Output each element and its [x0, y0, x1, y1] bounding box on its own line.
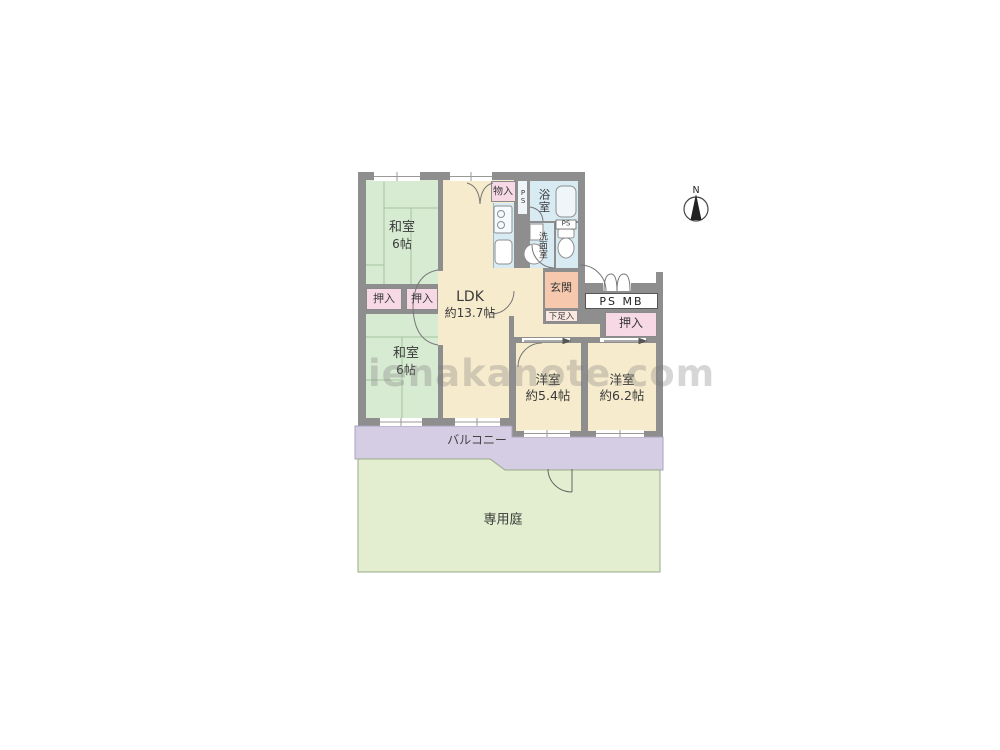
ldk-label: LDK 約13.7帖	[445, 288, 496, 322]
sliding-door-gap	[522, 338, 570, 342]
oshiire-left-2-label: 押入	[411, 292, 433, 306]
sliding-door-gap	[600, 338, 646, 342]
washitsu-top-label: 和室 6帖	[389, 220, 415, 252]
oshiire-left-1-label: 押入	[373, 292, 395, 306]
balcony-label: バルコニー	[447, 433, 507, 449]
entrance-door-gap	[603, 283, 631, 291]
bathroom-label: 浴室	[537, 189, 552, 214]
toilet-room	[556, 223, 578, 268]
entrance-label: 玄関	[550, 281, 572, 295]
washitsu-top-size: 6帖	[389, 237, 415, 253]
ldk-size: 約13.7帖	[445, 306, 496, 322]
oshiire-right-label: 押入	[619, 316, 643, 332]
ps-mb-label: PS MB	[599, 295, 643, 308]
shoe-cabinet-label: 下足入	[546, 311, 577, 321]
ldk-name: LDK	[445, 288, 496, 306]
north-arrow-icon	[684, 194, 708, 221]
watermark: ienakanote.com	[368, 352, 715, 395]
building-wall-east-pillar	[656, 272, 663, 283]
wall-segment	[438, 172, 443, 271]
private-garden-label: 専用庭	[483, 513, 522, 530]
compass-north-label: N	[692, 185, 699, 197]
washroom-label: 洗面室	[535, 232, 547, 259]
kitchen-area	[493, 203, 514, 268]
ps-small-label: PS	[562, 219, 571, 228]
shoe-cabinet: 下足入	[545, 310, 578, 322]
floor-plan-canvas: 下足入 PS MB	[0, 0, 1000, 750]
garden-gate-arc	[548, 469, 572, 492]
monoire-label: 物入	[493, 186, 513, 199]
hallway-main	[514, 268, 543, 343]
ps-mb-box: PS MB	[585, 293, 658, 309]
ps-shaft-label: PS	[518, 189, 527, 205]
washitsu-top-name: 和室	[389, 220, 415, 237]
